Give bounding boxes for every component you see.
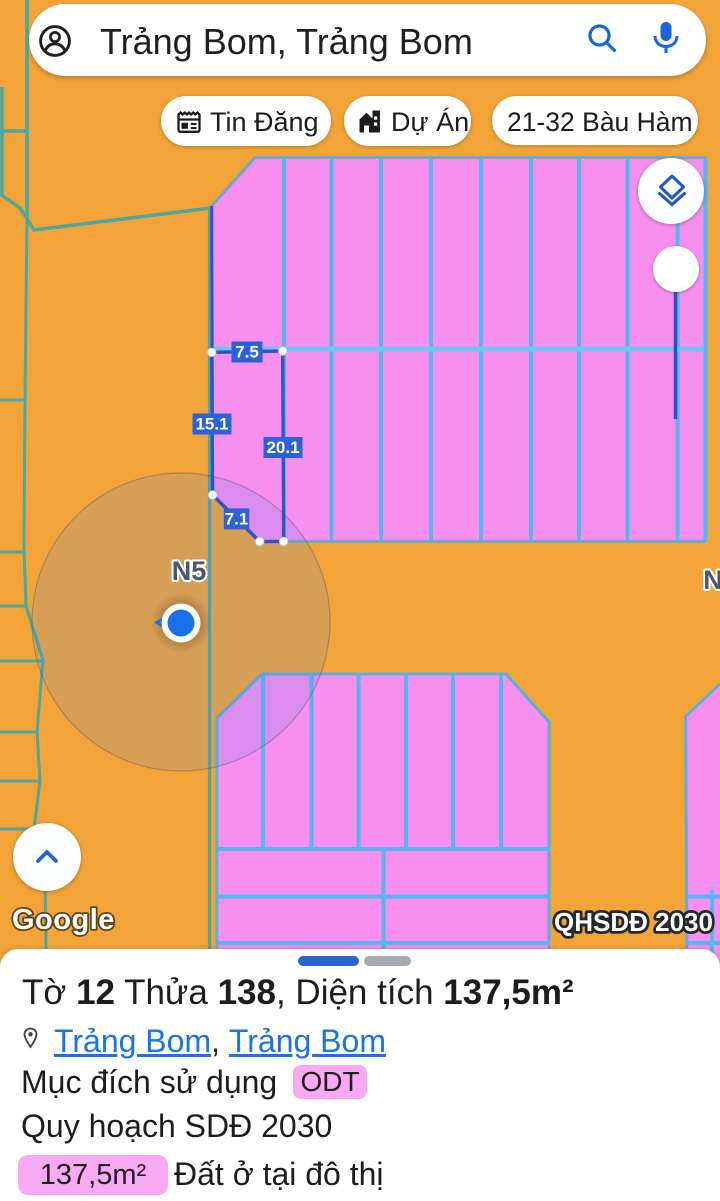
- svg-text:N5: N5: [172, 556, 207, 586]
- svg-text:20.1: 20.1: [266, 438, 299, 457]
- svg-text:15.1: 15.1: [195, 415, 228, 434]
- svg-text:Google: Google: [12, 904, 115, 936]
- svg-text:QHSDĐ 2030: QHSDĐ 2030: [554, 907, 713, 937]
- svg-text:N: N: [703, 565, 720, 595]
- svg-text:7.1: 7.1: [225, 509, 249, 528]
- svg-text:7.5: 7.5: [235, 343, 259, 362]
